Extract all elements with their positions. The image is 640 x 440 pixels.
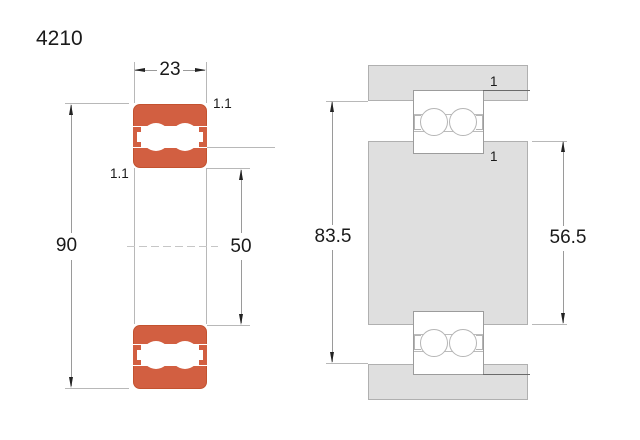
ball-upper-right [171,123,199,151]
mounted-ball-upper-left [420,108,448,136]
dim-shaft-arrow-bottom [561,313,565,324]
mounted-ball-lower-left [420,329,448,357]
dim-housing-ext-bottom [326,363,368,364]
ball-upper-left [142,123,170,151]
axis-centerline [127,246,218,247]
dim-od-arrow-top [69,104,73,115]
dim-housing-label: 83.5 [311,227,355,246]
dim-housing-arrow-bottom [330,352,334,363]
chamfer-label-top: 1.1 [213,97,232,111]
dim-housing-arrow-top [330,101,334,112]
dim-shaft-ext-bottom [532,324,567,325]
fillet-line-top [483,90,530,91]
part-number: 4210 [36,28,83,50]
dim-housing-line-lower [332,250,333,362]
shaft-section [368,141,528,325]
cage-tab-lower-left [133,345,141,365]
dim-shaft-label: 56.5 [546,228,590,247]
dim-od-line-lower [71,260,72,386]
dim-housing-line-upper [332,102,333,225]
dim-width-arrow-left [134,68,145,72]
dim-bore-label: 50 [224,237,258,256]
dim-bore-arrow-top [239,169,243,180]
dim-width-label: 23 [156,60,184,79]
dim-od-ext-top [65,103,129,104]
dim-bore-ext-bottom [207,325,250,326]
dim-od-ext-bottom [65,388,129,389]
dim-width-arrow-right [195,68,206,72]
dim-bore-ext-top [207,168,250,169]
dim-bore-arrow-bottom [239,314,243,325]
ball-lower-right [171,341,199,369]
ball-lower-left [142,341,170,369]
bearing-drawing-canvas: 4210 23 90 50 1.1 1.1 [0,0,640,440]
dim-shaft-line-upper [563,142,564,226]
cage-tab-upper-right [199,127,207,147]
dim-od-label: 90 [49,236,84,255]
dim-shaft-arrow-top [561,141,565,152]
cage-tab-upper-left [133,127,141,147]
dim-od-line-upper [71,105,72,233]
fillet-label-top: 1 [490,75,498,89]
cage-tab-lower-right [199,345,207,365]
mounted-ball-lower-right [449,329,477,357]
fillet-label-bottom: 1 [490,150,498,164]
chamfer-label-bottom: 1.1 [110,167,129,181]
dim-od-arrow-bottom [69,377,73,388]
extension-line-right-side-upper [206,62,207,103]
mounted-ball-upper-right [449,108,477,136]
shoulder-reference-line [207,147,275,148]
fillet-line-bottom [483,374,530,375]
